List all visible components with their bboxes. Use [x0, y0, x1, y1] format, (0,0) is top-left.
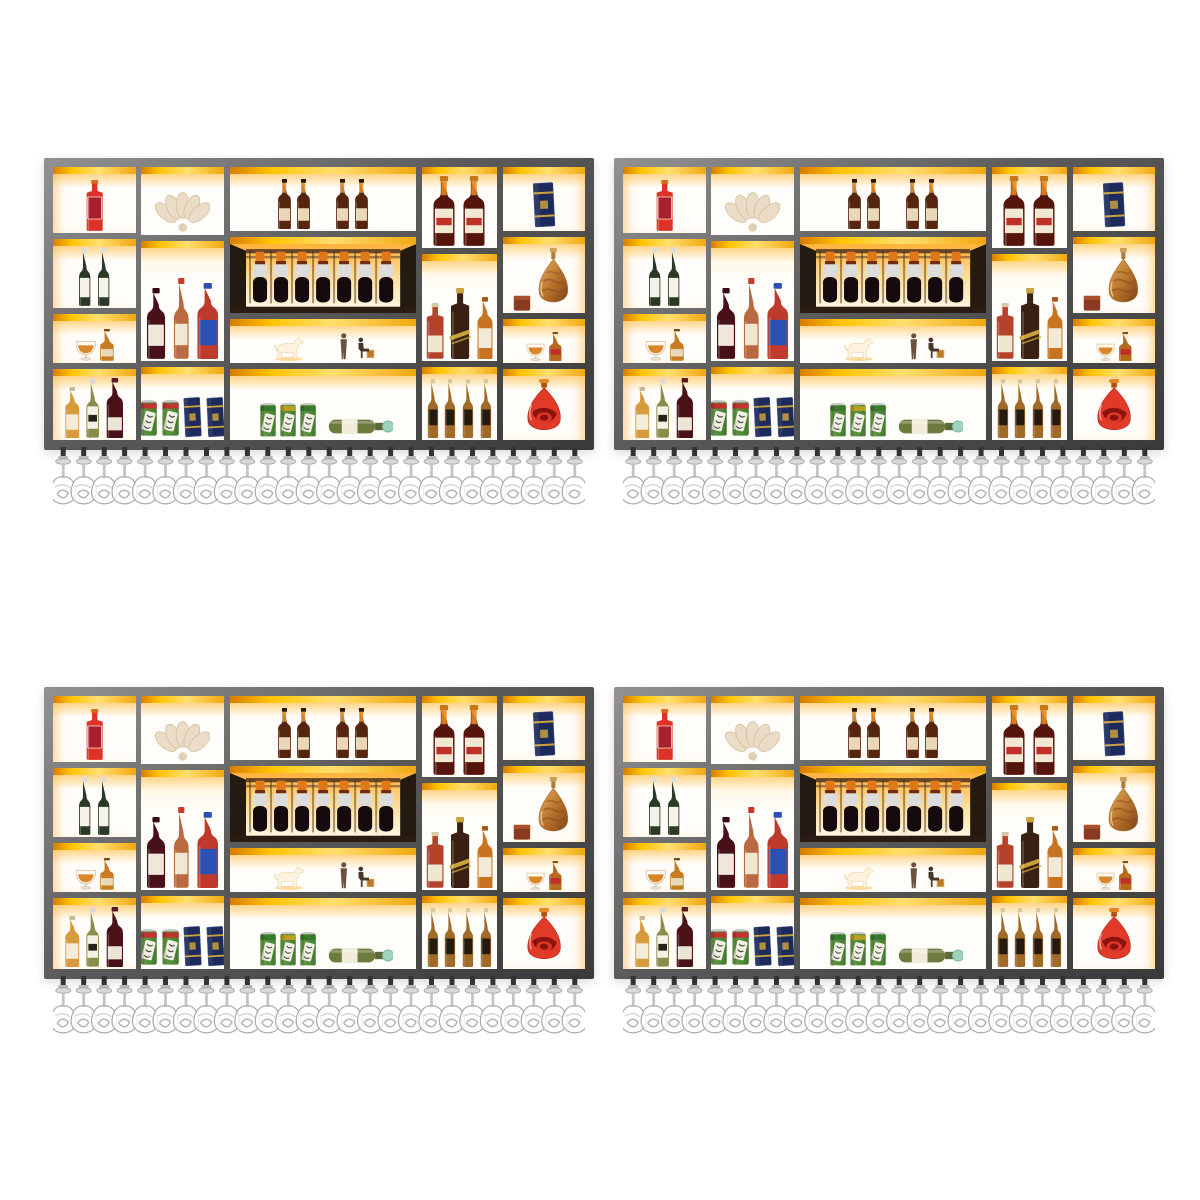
shelf-items	[55, 248, 134, 306]
shelf-items	[505, 378, 584, 438]
shelf-items	[232, 378, 414, 438]
beverage-can	[161, 928, 180, 967]
red-cognac-decanter	[1093, 379, 1135, 438]
bottle	[646, 248, 663, 306]
shelf-items	[994, 705, 1065, 775]
bottle	[295, 179, 312, 229]
cell-cans-lying-bottle	[230, 369, 416, 440]
shelf-items	[625, 323, 704, 361]
shelf-items	[802, 176, 984, 229]
cell-shell-ornament	[141, 167, 224, 235]
led-light-band	[711, 896, 794, 903]
shelf-items	[143, 779, 222, 888]
cell-brandy-row	[230, 167, 416, 231]
led-light-band	[141, 367, 224, 374]
beverage-can	[279, 931, 297, 967]
lying-green-bottle	[897, 944, 964, 967]
angled-wine-rack	[230, 244, 416, 314]
bottle	[144, 288, 168, 359]
bottle	[1012, 908, 1028, 967]
shelf-items	[1075, 328, 1154, 360]
bottle	[170, 278, 193, 359]
bottle	[76, 777, 93, 835]
person-seated-figurine	[355, 866, 376, 889]
cognac-snifter	[644, 338, 668, 361]
cell-shell-ornament	[711, 696, 794, 764]
led-light-band	[230, 898, 416, 905]
shelf-items	[55, 176, 134, 231]
shelf-items	[424, 905, 495, 967]
cognac-snifter	[74, 338, 98, 361]
led-light-band	[503, 766, 586, 773]
bottle	[646, 777, 663, 835]
small-red-box	[1083, 295, 1101, 311]
bottle	[194, 812, 222, 888]
cell-liquor-trio	[711, 770, 794, 890]
bottle	[994, 303, 1016, 359]
shelf-items	[143, 250, 222, 359]
bottle	[424, 832, 446, 888]
angled-wine-rack	[800, 773, 986, 843]
led-light-band	[230, 237, 416, 244]
led-light-band	[230, 369, 416, 376]
bottle	[665, 248, 682, 306]
bottle	[653, 379, 672, 438]
bottle	[353, 708, 370, 758]
bottle	[674, 378, 696, 438]
led-light-band	[53, 314, 136, 321]
shelf-items	[505, 907, 584, 967]
cell-liquor-trio	[141, 241, 224, 361]
beverage-can	[829, 402, 847, 438]
amber-glass-decanter	[1103, 777, 1144, 841]
cell-whiskey-bottles	[992, 896, 1067, 969]
cell-figurines	[230, 319, 416, 362]
led-light-band	[230, 167, 416, 174]
cell-amber-decanter	[503, 766, 586, 843]
bottle	[99, 858, 115, 890]
cell-red-decanter	[503, 898, 586, 969]
bottle	[353, 179, 370, 229]
navy-gift-box	[1101, 710, 1127, 758]
horse-figurine	[270, 865, 308, 890]
bottle	[1048, 908, 1064, 967]
led-light-band	[1073, 167, 1156, 174]
cell-cans-and-giftboxes	[141, 896, 224, 969]
person-standing-figurine	[338, 333, 350, 361]
person-seated-figurine	[925, 866, 946, 889]
cell-liquor-trio	[711, 241, 794, 361]
led-light-band	[623, 696, 706, 703]
cell-wine-trio-left	[623, 898, 706, 969]
bottle	[654, 180, 675, 231]
beverage-can	[869, 402, 887, 438]
cell-shell-ornament	[141, 696, 224, 764]
bottle	[1118, 861, 1133, 890]
bottle	[84, 180, 105, 231]
shelf-items	[713, 905, 792, 967]
led-light-band	[623, 167, 706, 174]
navy-gift-box	[205, 925, 224, 967]
shelf-items	[55, 705, 134, 760]
red-cognac-decanter	[1093, 908, 1135, 967]
led-light-band	[53, 167, 136, 174]
bottle	[714, 817, 738, 888]
led-light-band	[992, 783, 1067, 790]
shelf-items	[625, 907, 704, 967]
cell-cognac-set-right	[503, 848, 586, 891]
shelf-items	[1075, 246, 1154, 312]
shelf-items	[713, 705, 792, 762]
navy-gift-box	[775, 396, 794, 438]
navy-gift-box	[752, 925, 773, 967]
shelf-items	[1075, 775, 1154, 841]
bottle	[904, 179, 921, 229]
shelf-items	[424, 376, 495, 438]
red-cognac-decanter	[523, 908, 565, 967]
cell-amber-decanter	[503, 237, 586, 314]
beverage-can	[141, 928, 158, 967]
bottle	[99, 329, 115, 361]
shelf-items	[232, 857, 414, 889]
shell-ornament	[155, 719, 210, 762]
angled-wine-rack	[800, 244, 986, 314]
horse-figurine	[840, 865, 878, 890]
led-light-band	[800, 848, 986, 855]
bottle	[654, 709, 675, 760]
led-light-band	[992, 896, 1067, 903]
led-light-band	[141, 167, 224, 174]
led-light-band	[503, 237, 586, 244]
cell-wine-rack	[230, 766, 416, 843]
shelf-items	[232, 328, 414, 360]
bottle	[923, 179, 940, 229]
shelf-items	[994, 176, 1065, 246]
led-light-band	[503, 848, 586, 855]
shelf-items	[143, 705, 222, 762]
led-light-band	[992, 367, 1067, 374]
bottle	[276, 708, 293, 758]
beverage-can	[731, 928, 750, 967]
led-light-band	[800, 696, 986, 703]
bottle	[633, 916, 652, 967]
bottle	[669, 858, 685, 890]
cell-red-decanter	[503, 369, 586, 440]
person-standing-figurine	[908, 333, 920, 361]
small-red-box	[1083, 824, 1101, 840]
shelf-items	[424, 705, 495, 775]
bottle	[548, 861, 563, 890]
beverage-can	[259, 931, 277, 967]
hanging-stemware-row	[53, 447, 585, 511]
beverage-can	[731, 399, 750, 438]
bottle	[674, 907, 696, 967]
led-light-band	[711, 241, 794, 248]
led-light-band	[623, 239, 706, 246]
cell-figurines	[800, 848, 986, 891]
shelf-items	[994, 376, 1065, 438]
shelf-items	[802, 705, 984, 758]
led-light-band	[422, 783, 497, 790]
bottle	[1045, 826, 1065, 888]
led-light-band	[53, 369, 136, 376]
bottle	[740, 278, 763, 359]
shelf-items	[424, 176, 495, 246]
bottle	[76, 248, 93, 306]
shelf-items	[625, 777, 704, 835]
bottle	[478, 379, 494, 438]
cell-red-decanter	[1073, 898, 1156, 969]
shelf-items	[1075, 705, 1154, 758]
led-light-band	[992, 254, 1067, 261]
bottle	[430, 176, 458, 246]
shelf-items	[232, 705, 414, 758]
shelf-items	[424, 263, 495, 359]
hanging-stemware-row	[623, 976, 1155, 1040]
led-light-band	[800, 898, 986, 905]
beverage-can	[259, 402, 277, 438]
bottle	[83, 379, 102, 438]
bottle	[1030, 908, 1046, 967]
bottle	[194, 283, 222, 359]
shelf-items	[1075, 176, 1154, 229]
navy-gift-box	[752, 396, 773, 438]
angled-wine-rack	[230, 773, 416, 843]
led-light-band	[422, 167, 497, 174]
hanging-stemware-row	[623, 447, 1155, 511]
beverage-can	[711, 928, 728, 967]
led-light-band	[800, 237, 986, 244]
person-seated-figurine	[925, 337, 946, 360]
bottle	[714, 288, 738, 359]
shelf-items	[1075, 907, 1154, 967]
person-standing-figurine	[908, 862, 920, 890]
bottle	[430, 705, 458, 775]
cognac-snifter	[74, 867, 98, 890]
cell-whiskey-bottles	[422, 367, 497, 440]
bottle	[170, 807, 193, 888]
navy-gift-box	[182, 396, 203, 438]
led-light-band	[53, 843, 136, 850]
cell-cans-lying-bottle	[800, 369, 986, 440]
bottle	[442, 908, 458, 967]
led-light-band	[711, 696, 794, 703]
bottle	[424, 303, 446, 359]
led-light-band	[1073, 898, 1156, 905]
bottle	[669, 329, 685, 361]
led-light-band	[800, 369, 986, 376]
bottle	[904, 708, 921, 758]
led-light-band	[711, 167, 794, 174]
cell-brandy-row	[230, 696, 416, 760]
led-light-band	[1073, 696, 1156, 703]
led-light-band	[992, 167, 1067, 174]
shelf-items	[505, 246, 584, 312]
bottle	[95, 777, 112, 835]
shelf-items	[505, 176, 584, 229]
bottle	[740, 807, 763, 888]
cell-wine-trio-left	[623, 369, 706, 440]
bottle	[295, 708, 312, 758]
shelf-items	[625, 176, 704, 231]
cell-champagne-pair	[992, 696, 1067, 777]
cell-champagne-pair	[992, 167, 1067, 248]
shelf-unit-3	[44, 687, 594, 979]
cognac-snifter	[1095, 870, 1116, 890]
shelf-items	[232, 176, 414, 229]
cell-wine-rack	[800, 237, 986, 314]
bottle	[994, 832, 1016, 888]
shelf-items	[55, 378, 134, 438]
cell-amber-decanter	[1073, 766, 1156, 843]
cell-cans-lying-bottle	[230, 898, 416, 969]
beverage-can	[869, 931, 887, 967]
cell-cans-lying-bottle	[800, 898, 986, 969]
cell-whisky-trio	[992, 783, 1067, 890]
shelf-unit-2	[614, 158, 1164, 450]
cognac-snifter	[1095, 341, 1116, 361]
cell-liquor-trio	[141, 770, 224, 890]
shelf-unit-1	[44, 158, 594, 450]
cell-navy-gift-box	[503, 167, 586, 231]
bottle	[846, 179, 863, 229]
led-light-band	[503, 696, 586, 703]
shelf-items	[994, 792, 1065, 888]
shelf-items	[55, 777, 134, 835]
bottle	[1018, 817, 1042, 888]
bottle	[1048, 379, 1064, 438]
bottle	[1012, 379, 1028, 438]
cell-navy-gift-box	[1073, 696, 1156, 760]
bottle	[1045, 297, 1065, 359]
led-light-band	[230, 766, 416, 773]
bottle	[460, 705, 488, 775]
led-light-band	[1073, 848, 1156, 855]
bottle	[83, 908, 102, 967]
bottle	[425, 379, 441, 438]
lying-green-bottle	[327, 944, 394, 967]
bottle	[63, 387, 82, 438]
cell-figurines	[230, 848, 416, 891]
horse-figurine	[840, 336, 878, 361]
shelf-items	[802, 378, 984, 438]
bottle	[104, 378, 126, 438]
cell-white-wine-pair	[623, 768, 706, 837]
cell-brandy-row	[800, 696, 986, 760]
led-light-band	[623, 314, 706, 321]
shelf-items	[505, 705, 584, 758]
cell-wine-rack	[800, 766, 986, 843]
shelf-items	[713, 376, 792, 438]
cell-wine-rack	[230, 237, 416, 314]
led-light-band	[800, 319, 986, 326]
led-light-band	[53, 768, 136, 775]
led-light-band	[1073, 319, 1156, 326]
red-cognac-decanter	[523, 379, 565, 438]
led-light-band	[422, 254, 497, 261]
bottle	[334, 708, 351, 758]
horse-figurine	[270, 336, 308, 361]
cell-cognac-set-left	[53, 843, 136, 892]
led-light-band	[503, 898, 586, 905]
bottle	[1030, 176, 1058, 246]
cell-red-decanter	[1073, 369, 1156, 440]
led-light-band	[141, 770, 224, 777]
led-light-band	[623, 843, 706, 850]
shelf-items	[802, 907, 984, 967]
shell-ornament	[725, 190, 780, 233]
cell-cognac-set-right	[1073, 848, 1156, 891]
cell-white-wine-pair	[53, 768, 136, 837]
bottle	[475, 297, 495, 359]
led-light-band	[1073, 237, 1156, 244]
cell-champagne-pair	[422, 167, 497, 248]
led-light-band	[1073, 369, 1156, 376]
shelf-items	[55, 323, 134, 361]
bottle	[1000, 176, 1028, 246]
shell-ornament	[155, 190, 210, 233]
bottle	[846, 708, 863, 758]
beverage-can	[299, 931, 317, 967]
navy-gift-box	[182, 925, 203, 967]
cognac-snifter	[644, 867, 668, 890]
shelf-items	[143, 905, 222, 967]
cell-wine-trio-left	[53, 898, 136, 969]
bottle	[995, 908, 1011, 967]
cell-red-liqueur	[623, 167, 706, 233]
beverage-can	[829, 931, 847, 967]
led-light-band	[503, 167, 586, 174]
led-light-band	[422, 896, 497, 903]
led-light-band	[623, 768, 706, 775]
cell-brandy-row	[800, 167, 986, 231]
led-light-band	[53, 898, 136, 905]
cell-whiskey-bottles	[992, 367, 1067, 440]
bottle	[448, 817, 472, 888]
bottle	[548, 332, 563, 361]
led-light-band	[711, 367, 794, 374]
bottle	[276, 179, 293, 229]
beverage-can	[711, 399, 728, 438]
shelf-items	[713, 250, 792, 359]
led-light-band	[800, 167, 986, 174]
bottle	[665, 777, 682, 835]
navy-gift-box	[531, 710, 557, 758]
shelf-unit-4	[614, 687, 1164, 979]
bottle	[923, 708, 940, 758]
led-light-band	[1073, 766, 1156, 773]
shelf-items	[232, 907, 414, 967]
led-light-band	[711, 770, 794, 777]
beverage-can	[849, 931, 867, 967]
cell-cans-and-giftboxes	[141, 367, 224, 440]
cell-white-wine-pair	[623, 239, 706, 308]
shelf-items	[505, 857, 584, 889]
bottle	[865, 179, 882, 229]
cognac-snifter	[525, 341, 546, 361]
cell-whiskey-bottles	[422, 896, 497, 969]
bottle	[334, 179, 351, 229]
led-light-band	[141, 896, 224, 903]
navy-gift-box	[531, 181, 557, 229]
cell-cognac-set-right	[503, 319, 586, 362]
bottle	[1000, 705, 1028, 775]
beverage-can	[161, 399, 180, 438]
shelf-items	[625, 705, 704, 760]
shelf-items	[625, 852, 704, 890]
led-light-band	[230, 696, 416, 703]
led-light-band	[800, 766, 986, 773]
